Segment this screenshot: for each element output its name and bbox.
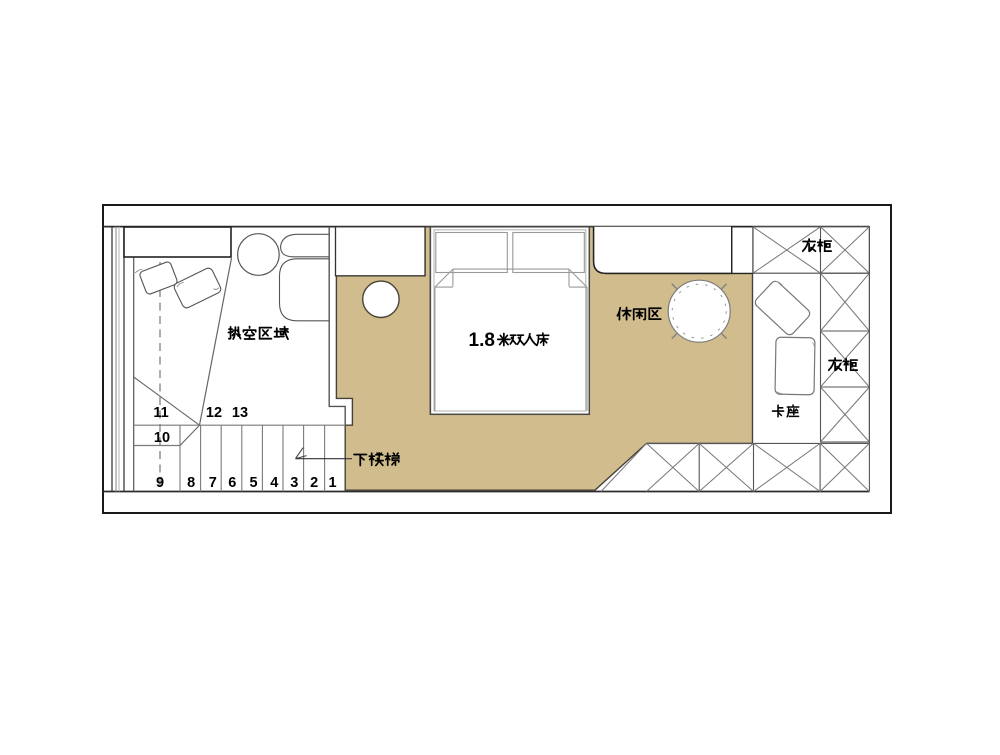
svg-text:1: 1 [328, 475, 336, 491]
svg-text:8: 8 [187, 475, 195, 491]
svg-text:9: 9 [156, 475, 164, 491]
svg-text:3: 3 [290, 475, 298, 491]
svg-text:4: 4 [270, 475, 278, 491]
svg-text:7: 7 [209, 475, 217, 491]
svg-text:1.8: 1.8 [469, 330, 495, 351]
svg-text:12: 12 [206, 405, 222, 421]
svg-text:10: 10 [154, 430, 170, 446]
svg-text:13: 13 [232, 405, 248, 421]
svg-text:6: 6 [228, 475, 236, 491]
svg-text:5: 5 [249, 475, 257, 491]
svg-text:11: 11 [153, 405, 168, 421]
svg-text:2: 2 [310, 475, 318, 491]
